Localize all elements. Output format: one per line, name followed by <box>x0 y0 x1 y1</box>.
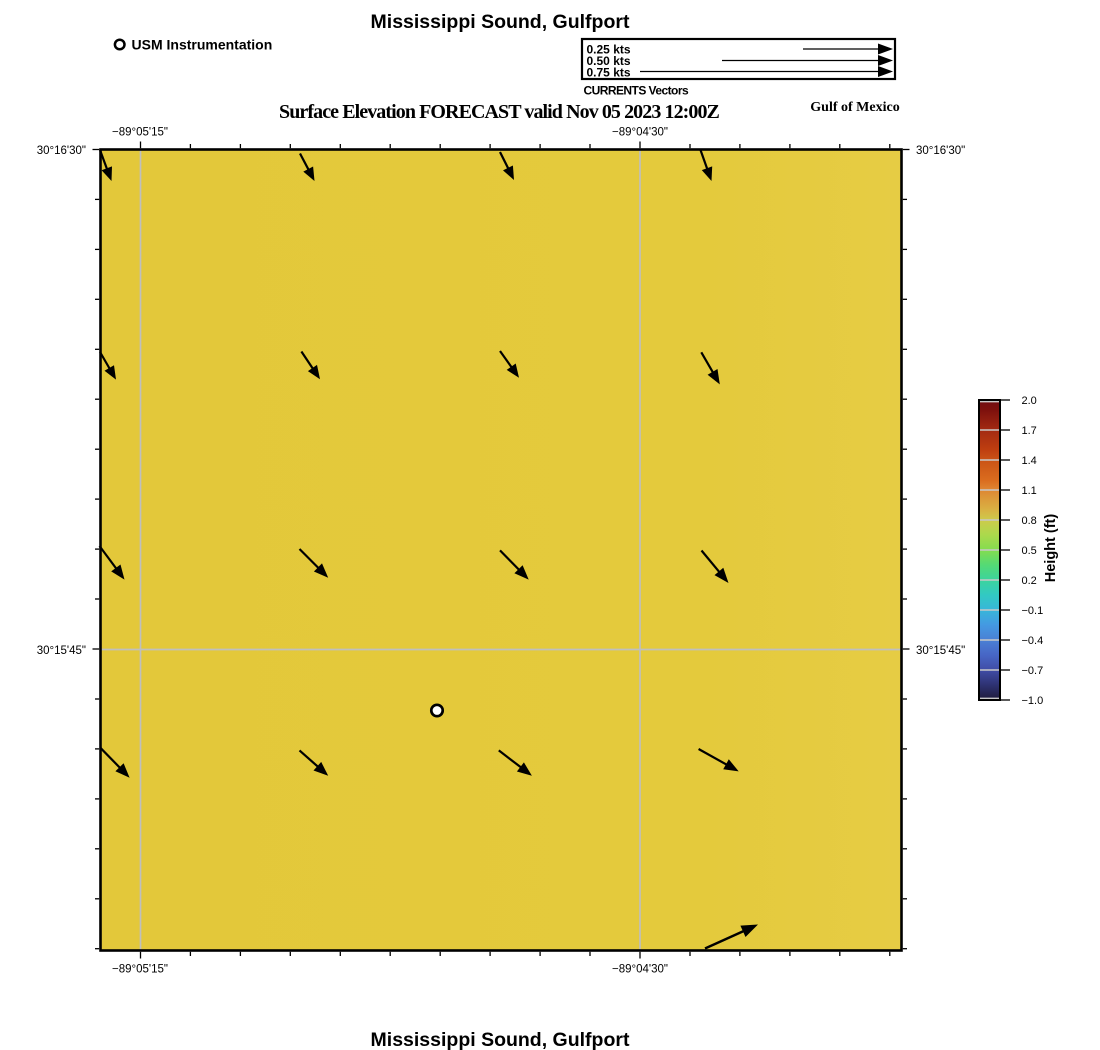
svg-text:30°15'45": 30°15'45" <box>916 645 965 657</box>
svg-text:30°15'45": 30°15'45" <box>37 645 86 657</box>
svg-text:1.4: 1.4 <box>1022 455 1037 467</box>
svg-text:Mississippi Sound, Gulfport: Mississippi Sound, Gulfport <box>371 1029 630 1050</box>
svg-text:0.2: 0.2 <box>1022 575 1037 587</box>
svg-text:0.75 kts: 0.75 kts <box>587 66 631 80</box>
svg-text:Surface Elevation FORECAST val: Surface Elevation FORECAST valid Nov 05 … <box>279 101 720 123</box>
svg-text:−89°05'15": −89°05'15" <box>112 127 168 139</box>
svg-text:CURRENTS Vectors: CURRENTS Vectors <box>584 84 689 98</box>
svg-text:−0.4: −0.4 <box>1022 635 1044 647</box>
svg-text:−1.0: −1.0 <box>1022 695 1044 707</box>
svg-text:1.7: 1.7 <box>1022 425 1037 437</box>
svg-text:Gulf of Mexico: Gulf of Mexico <box>810 100 899 115</box>
svg-text:1.1: 1.1 <box>1022 485 1037 497</box>
svg-text:0.5: 0.5 <box>1022 545 1037 557</box>
svg-text:−89°05'15": −89°05'15" <box>112 964 168 976</box>
svg-text:Height (ft): Height (ft) <box>1043 514 1059 583</box>
svg-text:USM Instrumentation: USM Instrumentation <box>132 37 273 53</box>
svg-text:Mississippi Sound, Gulfport: Mississippi Sound, Gulfport <box>371 11 630 33</box>
svg-text:30°16'30": 30°16'30" <box>916 145 965 157</box>
svg-text:2.0: 2.0 <box>1022 395 1037 407</box>
svg-text:−89°04'30": −89°04'30" <box>612 964 668 976</box>
svg-text:0.8: 0.8 <box>1022 515 1037 527</box>
svg-text:−89°04'30": −89°04'30" <box>612 127 668 139</box>
svg-text:30°16'30": 30°16'30" <box>37 145 86 157</box>
svg-text:−0.7: −0.7 <box>1022 665 1044 677</box>
svg-text:−0.1: −0.1 <box>1022 605 1044 617</box>
